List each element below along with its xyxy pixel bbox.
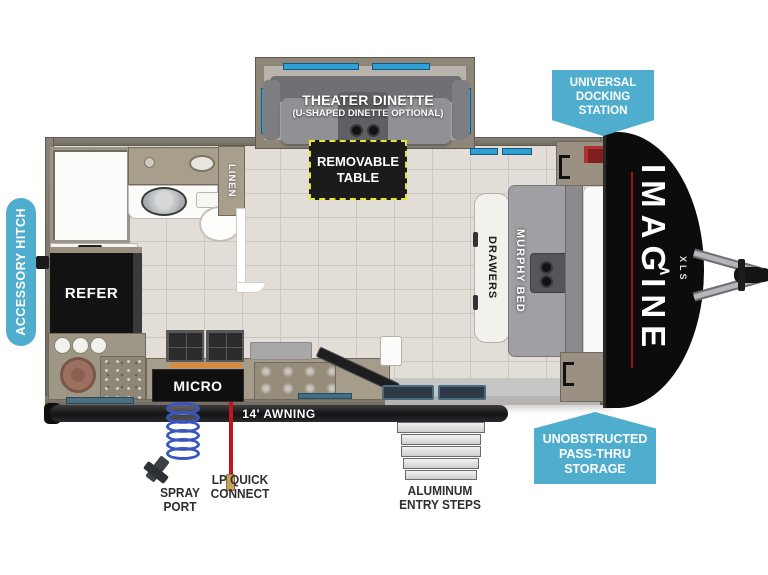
brand-underline [631, 172, 633, 368]
awning-label: 14' AWNING [242, 407, 315, 421]
drawer-handle [473, 232, 478, 247]
entry-step [405, 470, 477, 480]
counter-end-cabinet [380, 336, 402, 366]
accessory-hitch-receiver [36, 256, 49, 269]
murphy-bed-label: MURPHY BED [514, 229, 526, 313]
entry-mat [438, 385, 486, 400]
bathroom-wall [236, 208, 246, 292]
top-window-left [470, 148, 498, 155]
spray-hose-coil [166, 402, 206, 464]
hitch-a-frame [690, 245, 768, 305]
universal-docking-station-badge: UNIVERSAL DOCKING STATION [552, 70, 654, 136]
stove-burner-right [206, 330, 244, 362]
rear-counter-granite [100, 356, 146, 400]
entry-steps-label: ALUMINUM ENTRY STEPS [394, 484, 485, 513]
grand-design-chevron-icon: ∧ [656, 266, 674, 277]
passthru-storage-badge: UNOBSTRUCTED PASS-THRU STORAGE [534, 412, 656, 484]
rear-sink-drain [71, 368, 85, 382]
wall-top-left [45, 137, 258, 146]
entry-step [403, 458, 479, 469]
canister [90, 337, 107, 354]
stored-gear [584, 146, 607, 163]
canister [54, 337, 71, 354]
drawer-handle [473, 295, 478, 310]
linen-cabinet: LINEN [218, 146, 245, 216]
stove-burner-left [166, 330, 204, 362]
canister [72, 337, 89, 354]
awning-bar: 14' AWNING [50, 405, 508, 422]
vanity-detail [189, 155, 215, 172]
oven-handle [170, 363, 242, 368]
linen-label: LINEN [226, 164, 237, 198]
cupholder [540, 261, 553, 274]
dinette-title: THEATER DINETTE [262, 92, 474, 108]
bottom-window-kitchen [298, 393, 352, 399]
microwave: MICRO [152, 369, 244, 402]
accessory-hitch-badge: ACCESSORY HITCH [6, 198, 36, 346]
accessory-hitch-label: ACCESSORY HITCH [14, 208, 28, 336]
cabinet-handle [559, 155, 570, 179]
entry-step [397, 422, 485, 433]
shower [50, 147, 130, 243]
counter-cutting-board [250, 342, 312, 360]
top-window-right [502, 148, 532, 155]
refrigerator: REFER [50, 253, 142, 333]
entry-step [401, 446, 481, 457]
entry-mat [382, 385, 434, 400]
bathroom-sink [141, 187, 187, 216]
lp-quick-connect-label: LP QUICK CONNECT [200, 473, 280, 502]
murphy-bed-frame [565, 180, 583, 366]
cupholder [350, 124, 363, 137]
drawers-label: DRAWERS [486, 236, 498, 299]
bottom-window-rear [66, 397, 134, 404]
lp-line [229, 402, 233, 476]
dinette-subtitle: (U-SHAPED DINETTE OPTIONAL) [258, 108, 478, 119]
brand-xls: XLS [678, 256, 688, 300]
floorplan-canvas: THEATER DINETTE (U-SHAPED DINETTE OPTION… [0, 0, 768, 575]
vanity-knob [144, 157, 155, 168]
cabinet-handle [563, 362, 574, 386]
micro-label: MICRO [173, 378, 222, 394]
murphy-bed-drawers: DRAWERS [474, 193, 510, 343]
cupholder [367, 124, 380, 137]
removable-table-label: REMOVABLE TABLE [309, 140, 407, 200]
slide-window-left [283, 63, 359, 70]
entry-step [401, 434, 481, 445]
slide-window-right [372, 63, 430, 70]
cupholder [540, 275, 553, 288]
refer-label: REFER [65, 285, 118, 302]
